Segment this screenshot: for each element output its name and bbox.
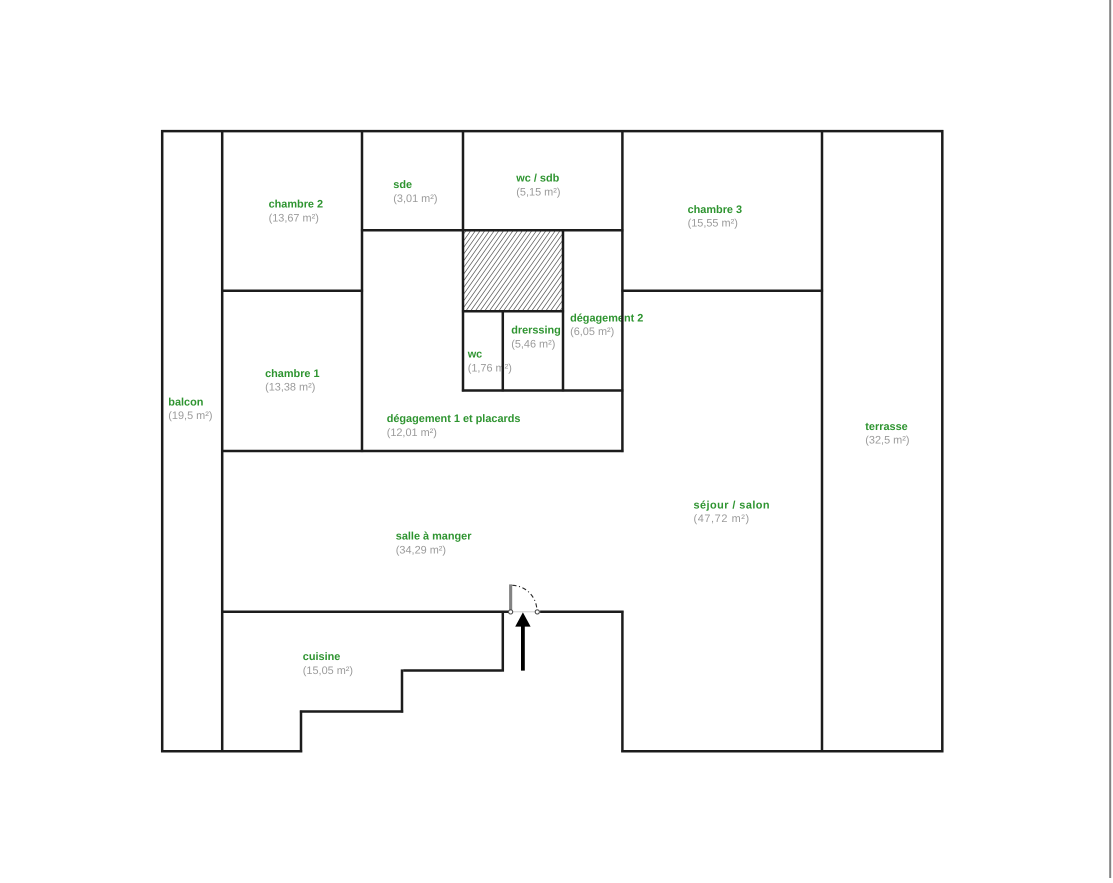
svg-text:(6,05 m²): (6,05 m²) — [570, 326, 614, 338]
svg-text:(32,5 m²): (32,5 m²) — [865, 435, 909, 447]
svg-text:balcon: balcon — [168, 396, 203, 408]
svg-text:chambre 3: chambre 3 — [688, 204, 742, 216]
svg-text:(5,15 m²): (5,15 m²) — [516, 186, 560, 198]
svg-text:(13,38 m²): (13,38 m²) — [265, 382, 315, 394]
svg-text:(13,67 m²): (13,67 m²) — [269, 213, 319, 225]
svg-text:dégagement 2: dégagement 2 — [570, 312, 643, 324]
svg-text:(12,01 m²): (12,01 m²) — [387, 427, 437, 439]
svg-text:wc / sdb: wc / sdb — [515, 173, 559, 185]
svg-text:salle à manger: salle à manger — [396, 531, 472, 543]
svg-text:(5,46 m²): (5,46 m²) — [511, 339, 555, 351]
svg-text:(47,72 m²): (47,72 m²) — [694, 513, 750, 525]
svg-text:sde: sde — [393, 179, 412, 191]
svg-text:(19,5 m²): (19,5 m²) — [168, 410, 212, 422]
svg-text:cuisine: cuisine — [303, 651, 341, 663]
svg-text:chambre 1: chambre 1 — [265, 368, 319, 380]
svg-text:chambre 2: chambre 2 — [269, 199, 323, 211]
svg-text:terrasse: terrasse — [865, 421, 907, 433]
svg-text:(15,05 m²): (15,05 m²) — [303, 665, 353, 677]
svg-text:(34,29 m²): (34,29 m²) — [396, 545, 446, 557]
svg-text:dégagement 1 et placards: dégagement 1 et placards — [387, 413, 521, 425]
svg-text:(15,55 m²): (15,55 m²) — [688, 218, 738, 230]
svg-text:(3,01 m²): (3,01 m²) — [393, 193, 437, 205]
svg-text:wc: wc — [467, 349, 483, 361]
svg-text:drerssing: drerssing — [511, 325, 561, 337]
svg-text:(1,76 m²): (1,76 m²) — [468, 363, 512, 375]
svg-text:séjour / salon: séjour / salon — [694, 499, 771, 511]
